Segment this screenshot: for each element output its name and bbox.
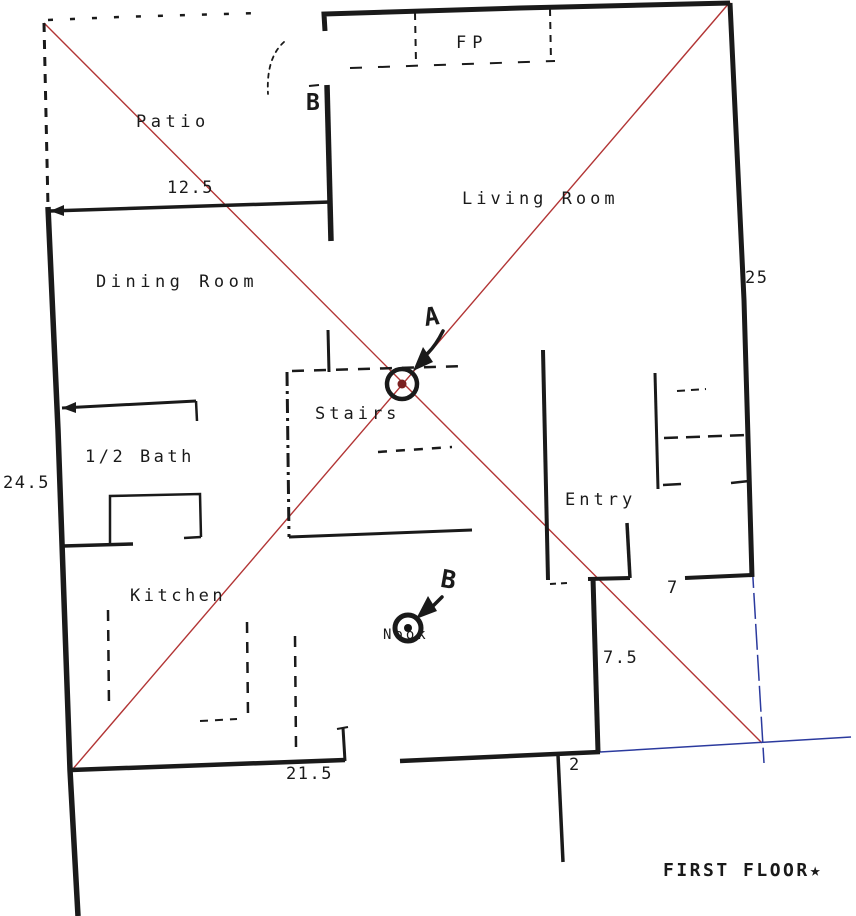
patio-top-dashed-edge [48, 13, 258, 20]
half-bath-fixture-outline [110, 494, 201, 544]
right-inset-wall [685, 575, 752, 578]
sheet-title: FIRST FLOOR★ [663, 862, 823, 880]
stairs-mid-dashed-line [378, 447, 452, 452]
patio-bottom-wall [50, 202, 330, 211]
lower-right-wall [593, 578, 598, 752]
wall-section-b [327, 85, 331, 241]
kitchen-wall-end-stub [343, 728, 345, 761]
kitchen-counter-dash-3 [295, 636, 296, 747]
dim-arrow-bath-left [62, 402, 76, 413]
room-label-patio: Patio [136, 114, 210, 131]
dim-kitchen-wall: 21.5 [286, 766, 333, 783]
half-bath-fixture-hook [184, 537, 201, 538]
half-bath-top-wall [62, 401, 196, 408]
closet-top-dashes [677, 389, 706, 391]
stairs-left-wall [287, 372, 289, 537]
dim-bottom-offset: 2 [569, 757, 581, 774]
stairs-top-dashed-line [292, 366, 466, 371]
entry-bottom-dashes [550, 583, 567, 584]
dim-entry-opening: 7 [667, 580, 679, 597]
kitchen-wall-end-tick [337, 727, 348, 729]
half-bath-bottom-wall [63, 544, 133, 546]
stairs-wall-stub [328, 330, 329, 372]
kitchen-counter-dash-1 [108, 610, 109, 707]
closet-left-wall [655, 373, 658, 489]
room-label-dining-room: Dining Room [96, 274, 258, 291]
marker-a-arrow-shaft [428, 331, 443, 353]
bottom-offset-wall [558, 755, 563, 862]
patio-left-dashed-wall [44, 23, 48, 207]
right-exterior-wall [730, 3, 752, 577]
dim-lower-right-wall: 7.5 [603, 650, 638, 667]
room-label-nook: Nook [383, 628, 429, 642]
room-label-stairs: Stairs [315, 406, 400, 423]
fireplace-hearth-dashes [350, 61, 555, 68]
closet-lower-dash-left [663, 484, 681, 485]
entry-left-wall [543, 350, 548, 580]
dim-arrow-patio-left [50, 205, 64, 216]
room-label-living-room: Living Room [462, 191, 619, 208]
patio-door-swing-arc [268, 42, 284, 94]
dim-right-wall: 25 [745, 270, 768, 287]
fireplace-dash-left [415, 13, 416, 63]
closet-lower-dash-right [731, 481, 749, 483]
closet-shelf-dashed-line [664, 435, 748, 438]
room-label-fireplace: FP [456, 35, 488, 52]
room-label-entry: Entry [565, 492, 636, 509]
left-exterior-wall [48, 207, 78, 916]
marker-a-dot [398, 380, 407, 389]
entry-step-wall [627, 523, 630, 578]
marker-b-wall-letter: B [306, 92, 320, 115]
fireplace-dash-right [550, 9, 551, 62]
floor-plan-canvas: Patio Living Room Dining Room Stairs 1/2… [0, 0, 856, 916]
dim-left-wall: 24.5 [3, 475, 50, 492]
top-exterior-wall [324, 3, 730, 31]
dim-patio-width: 12.5 [167, 180, 214, 197]
room-label-kitchen: Kitchen [130, 588, 226, 605]
room-label-half-bath: 1/2 Bath [85, 449, 195, 466]
marker-b-arrowhead [416, 596, 437, 619]
blue-vertical-guide-line [752, 562, 764, 763]
stairs-bottom-wall [289, 530, 472, 537]
blue-horizontal-guide-line [600, 737, 851, 752]
half-bath-top-wall-stub [196, 401, 197, 421]
wall-section-b-tick [309, 85, 319, 86]
kitchen-counter-dash-2 [247, 622, 248, 716]
kitchen-counter-dash-4 [200, 719, 237, 721]
